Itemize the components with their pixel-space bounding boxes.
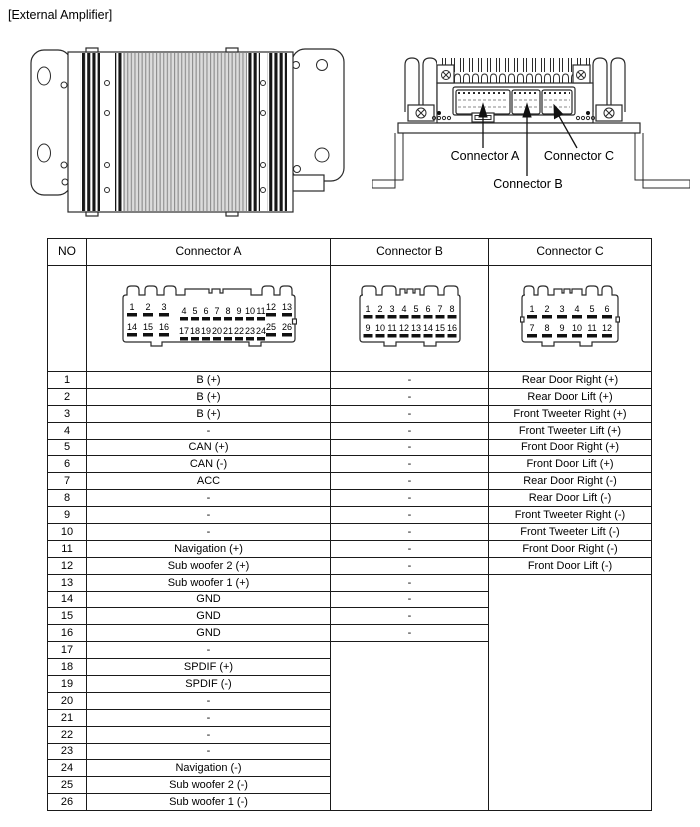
connector-b-pin-diagram: 12345678 910111213141516 xyxy=(331,266,489,372)
pin-number: 25 xyxy=(265,322,275,332)
pin-value-cell: Sub woofer 2 (+) xyxy=(87,557,331,574)
pin-value-cell: - xyxy=(331,625,489,642)
pin-value-cell: B (+) xyxy=(87,388,331,405)
fin-dark-band xyxy=(115,53,123,211)
pin-no-cell: 13 xyxy=(48,574,87,591)
pin-number: 7 xyxy=(437,304,442,314)
pin-no-cell: 1 xyxy=(48,372,87,389)
pin-no-cell: 21 xyxy=(48,709,87,726)
pin-number: 9 xyxy=(236,306,241,316)
pin-slot xyxy=(143,313,153,317)
pin-value-cell: - xyxy=(331,574,489,591)
pin-number: 6 xyxy=(203,306,208,316)
pin-value-cell: Front Tweeter Right (+) xyxy=(489,405,652,422)
pin-slot xyxy=(447,315,456,319)
pin-slot xyxy=(423,315,432,319)
pin-number: 16 xyxy=(446,323,456,333)
pin-slot xyxy=(127,333,137,337)
fin-dark-band xyxy=(80,53,100,211)
bottom-tab xyxy=(226,212,238,216)
pin-value-cell: - xyxy=(87,692,331,709)
bottom-tab xyxy=(86,212,98,216)
pin-value-cell: - xyxy=(331,456,489,473)
pin-number: 4 xyxy=(181,306,186,316)
pin-number: 8 xyxy=(544,323,549,333)
pin-slot xyxy=(387,315,396,319)
pin-slot xyxy=(447,334,456,338)
pin-slot xyxy=(235,317,243,321)
pin-number: 20 xyxy=(211,326,221,336)
pin-slot xyxy=(375,315,384,319)
pin-slot xyxy=(246,337,254,341)
pin-no-cell: 16 xyxy=(48,625,87,642)
pin-slot xyxy=(557,334,567,338)
pin-value-cell: GND xyxy=(87,591,331,608)
pin-number: 12 xyxy=(602,323,612,333)
pin-number: 14 xyxy=(422,323,432,333)
pin-value-cell: Rear Door Lift (-) xyxy=(489,490,652,507)
pin-value-cell: - xyxy=(331,490,489,507)
pin-no-cell: 19 xyxy=(48,676,87,693)
pin-slot xyxy=(213,317,221,321)
pin-slot xyxy=(257,317,265,321)
pin-value-cell: Front Door Right (+) xyxy=(489,439,652,456)
pin-slot xyxy=(266,333,276,337)
pin-value-cell: - xyxy=(331,372,489,389)
pin-value-cell: CAN (+) xyxy=(87,439,331,456)
pin-number: 26 xyxy=(281,322,291,332)
pin-slot xyxy=(587,315,597,319)
pin-value-cell: Front Tweeter Right (-) xyxy=(489,507,652,524)
pin-slot xyxy=(387,334,396,338)
pin-no-cell: 7 xyxy=(48,473,87,490)
merged-empty-cell xyxy=(489,574,652,810)
base-plate xyxy=(398,123,640,133)
pin-number: 23 xyxy=(244,326,254,336)
pin-value-cell: Rear Door Lift (+) xyxy=(489,388,652,405)
pin-no-cell: 14 xyxy=(48,591,87,608)
pin-value-cell: Navigation (-) xyxy=(87,760,331,777)
pin-number: 7 xyxy=(214,306,219,316)
pin-slot xyxy=(423,334,432,338)
pin-number: 9 xyxy=(559,323,564,333)
pin-number: 6 xyxy=(425,304,430,314)
right-bracket xyxy=(292,49,344,191)
pin-row: 10--Front Tweeter Lift (-) xyxy=(48,524,652,541)
pin-no-cell: 26 xyxy=(48,794,87,811)
pin-no-cell: 11 xyxy=(48,540,87,557)
pin-number: 6 xyxy=(604,304,609,314)
table-header-row: NO Connector A Connector B Connector C xyxy=(48,239,652,266)
pin-slot xyxy=(127,313,137,317)
pin-number: 2 xyxy=(544,304,549,314)
pin-number: 13 xyxy=(410,323,420,333)
pin-number: 5 xyxy=(192,306,197,316)
pin-number: 11 xyxy=(256,306,265,316)
pin-number: 3 xyxy=(161,302,166,312)
pin-slot xyxy=(572,334,582,338)
pin-value-cell: Navigation (+) xyxy=(87,540,331,557)
pin-no-cell: 3 xyxy=(48,405,87,422)
pin-slot xyxy=(363,334,372,338)
pin-row: 12Sub woofer 2 (+)-Front Door Lift (-) xyxy=(48,557,652,574)
connector-diagram-row: 123 4567891011 1213 141516 1718192021222… xyxy=(48,266,652,372)
pin-row: 9--Front Tweeter Right (-) xyxy=(48,507,652,524)
pin-no-cell: 25 xyxy=(48,777,87,794)
pinout-table-body: 1B (+)-Rear Door Right (+)2B (+)-Rear Do… xyxy=(48,372,652,811)
pin-slot xyxy=(235,337,243,341)
pin-value-cell: Front Door Lift (+) xyxy=(489,456,652,473)
pin-value-cell: - xyxy=(331,405,489,422)
pin-value-cell: Sub woofer 1 (-) xyxy=(87,794,331,811)
pin-value-cell: Sub woofer 1 (+) xyxy=(87,574,331,591)
pin-number: 2 xyxy=(145,302,150,312)
pin-no-cell: 6 xyxy=(48,456,87,473)
header-connector-c: Connector C xyxy=(489,239,652,266)
pin-number: 15 xyxy=(434,323,444,333)
pin-number: 4 xyxy=(401,304,406,314)
pin-number: 11 xyxy=(387,323,396,333)
pin-no-cell: 12 xyxy=(48,557,87,574)
pin-number: 4 xyxy=(574,304,579,314)
pin-number: 14 xyxy=(126,322,136,332)
fin-dark-band xyxy=(247,53,260,211)
diagram-no-cell xyxy=(48,266,87,372)
pin-number: 12 xyxy=(265,302,275,312)
amplifier-front-view-figure xyxy=(30,43,345,217)
pin-value-cell: Front Door Right (-) xyxy=(489,540,652,557)
pin-number: 13 xyxy=(281,302,291,312)
pin-slot xyxy=(587,334,597,338)
pin-number: 1 xyxy=(529,304,534,314)
pin-no-cell: 17 xyxy=(48,642,87,659)
pin-value-cell: GND xyxy=(87,608,331,625)
pin-number: 8 xyxy=(449,304,454,314)
pin-slot xyxy=(542,315,552,319)
pin-number: 12 xyxy=(398,323,408,333)
pin-slot xyxy=(191,317,199,321)
pin-value-cell: - xyxy=(87,642,331,659)
pin-number: 8 xyxy=(225,306,230,316)
amplifier-rear-view-figure: Connector A Connector C Connector B xyxy=(372,45,690,195)
fin-dark-band xyxy=(267,53,287,211)
pin-slot xyxy=(159,313,169,317)
pin-value-cell: - xyxy=(331,388,489,405)
pin-value-cell: ACC xyxy=(87,473,331,490)
pin-no-cell: 15 xyxy=(48,608,87,625)
page: [External Amplifier] xyxy=(0,0,700,827)
pin-value-cell: SPDIF (-) xyxy=(87,676,331,693)
pin-no-cell: 23 xyxy=(48,743,87,760)
pin-number: 10 xyxy=(572,323,582,333)
pin-slot xyxy=(213,337,221,341)
pin-value-cell: CAN (-) xyxy=(87,456,331,473)
pin-no-cell: 9 xyxy=(48,507,87,524)
pin-slot xyxy=(557,315,567,319)
pin-number: 17 xyxy=(178,326,188,336)
pin-value-cell: - xyxy=(87,490,331,507)
pin-no-cell: 24 xyxy=(48,760,87,777)
pin-row: 13Sub woofer 1 (+)- xyxy=(48,574,652,591)
pin-number: 1 xyxy=(129,302,134,312)
pin-value-cell: GND xyxy=(87,625,331,642)
pin-no-cell: 22 xyxy=(48,726,87,743)
pin-no-cell: 5 xyxy=(48,439,87,456)
pin-value-cell: - xyxy=(87,507,331,524)
pin-row: 7ACC-Rear Door Right (-) xyxy=(48,473,652,490)
pin-value-cell: Front Tweeter Lift (+) xyxy=(489,422,652,439)
pin-slot xyxy=(399,334,408,338)
pin-slot xyxy=(266,313,276,317)
pin-slot xyxy=(257,337,265,341)
connector-c-pin-diagram: 123456 789101112 xyxy=(489,266,652,372)
heatsink-fins xyxy=(123,53,247,211)
pin-number: 10 xyxy=(244,306,254,316)
pin-number: 18 xyxy=(189,326,199,336)
pin-number: 3 xyxy=(389,304,394,314)
pin-slot xyxy=(246,317,254,321)
pin-value-cell: B (+) xyxy=(87,372,331,389)
pin-number: 21 xyxy=(222,326,232,336)
pin-slot xyxy=(202,317,210,321)
header-no: NO xyxy=(48,239,87,266)
pin-no-cell: 2 xyxy=(48,388,87,405)
pin-row: 4--Front Tweeter Lift (+) xyxy=(48,422,652,439)
pin-number: 9 xyxy=(365,323,370,333)
top-tab xyxy=(86,48,98,52)
pin-value-cell: - xyxy=(331,473,489,490)
pin-slot xyxy=(411,315,420,319)
pin-value-cell: - xyxy=(331,524,489,541)
pin-number: 10 xyxy=(374,323,384,333)
pin-value-cell: - xyxy=(87,709,331,726)
pin-slot xyxy=(282,313,292,317)
page-title: [External Amplifier] xyxy=(8,8,112,22)
pin-number: 15 xyxy=(142,322,152,332)
pin-no-cell: 10 xyxy=(48,524,87,541)
pin-value-cell: - xyxy=(87,726,331,743)
top-tab xyxy=(226,48,238,52)
pin-slot xyxy=(602,315,612,319)
connector-a-callout-label: Connector A xyxy=(451,149,520,163)
pin-number: 5 xyxy=(589,304,594,314)
pin-value-cell: B (+) xyxy=(87,405,331,422)
pin-value-cell: - xyxy=(87,422,331,439)
pin-row: 8--Rear Door Lift (-) xyxy=(48,490,652,507)
pin-value-cell: Front Door Lift (-) xyxy=(489,557,652,574)
pin-no-cell: 4 xyxy=(48,422,87,439)
pin-number: 22 xyxy=(233,326,243,336)
pin-slot xyxy=(224,317,232,321)
pin-slot xyxy=(411,334,420,338)
pin-row: 5CAN (+)-Front Door Right (+) xyxy=(48,439,652,456)
pin-slot xyxy=(180,337,188,341)
pin-no-cell: 20 xyxy=(48,692,87,709)
pin-slot xyxy=(143,333,153,337)
pin-slot xyxy=(180,317,188,321)
pin-slot xyxy=(159,333,169,337)
pin-value-cell: - xyxy=(87,524,331,541)
pin-slot xyxy=(282,333,292,337)
pin-number: 19 xyxy=(200,326,210,336)
connector-c-callout-label: Connector C xyxy=(544,149,614,163)
header-connector-b: Connector B xyxy=(331,239,489,266)
pin-value-cell: Rear Door Right (+) xyxy=(489,372,652,389)
pin-value-cell: - xyxy=(331,422,489,439)
left-bracket xyxy=(31,50,71,195)
pinout-table: NO Connector A Connector B Connector C 1… xyxy=(47,238,652,811)
pin-slot xyxy=(602,334,612,338)
amplifier-body xyxy=(68,48,293,216)
pin-value-cell: - xyxy=(331,557,489,574)
pin-row: 6CAN (-)-Front Door Lift (+) xyxy=(48,456,652,473)
pin-number: 11 xyxy=(587,323,596,333)
pin-value-cell: - xyxy=(331,507,489,524)
pin-number: 3 xyxy=(559,304,564,314)
pin-slot xyxy=(399,315,408,319)
pin-slot xyxy=(375,334,384,338)
pin-slot xyxy=(542,334,552,338)
pin-slot xyxy=(572,315,582,319)
pin-number: 7 xyxy=(529,323,534,333)
pin-value-cell: Front Tweeter Lift (-) xyxy=(489,524,652,541)
pin-slot xyxy=(363,315,372,319)
pin-value-cell: - xyxy=(331,439,489,456)
connector-a-pin-diagram: 123 4567891011 1213 141516 1718192021222… xyxy=(87,266,331,372)
pin-value-cell: - xyxy=(87,743,331,760)
merged-empty-cell xyxy=(331,642,489,811)
pin-row: 3B (+)-Front Tweeter Right (+) xyxy=(48,405,652,422)
pin-value-cell: - xyxy=(331,608,489,625)
pin-value-cell: - xyxy=(331,540,489,557)
pin-slot xyxy=(435,315,444,319)
pin-slot xyxy=(435,334,444,338)
pin-number: 1 xyxy=(365,304,370,314)
pin-slot xyxy=(191,337,199,341)
pin-slot xyxy=(202,337,210,341)
pin-no-cell: 8 xyxy=(48,490,87,507)
connector-b-callout-label: Connector B xyxy=(493,177,562,191)
pin-slot xyxy=(224,337,232,341)
pin-row: 11Navigation (+)-Front Door Right (-) xyxy=(48,540,652,557)
heatsink-comb xyxy=(437,58,590,83)
header-connector-a: Connector A xyxy=(87,239,331,266)
pin-row: 1B (+)-Rear Door Right (+) xyxy=(48,372,652,389)
pin-row: 2B (+)-Rear Door Lift (+) xyxy=(48,388,652,405)
pin-number: 16 xyxy=(158,322,168,332)
pin-value-cell: Rear Door Right (-) xyxy=(489,473,652,490)
pin-number: 5 xyxy=(413,304,418,314)
pin-value-cell: Sub woofer 2 (-) xyxy=(87,777,331,794)
pin-no-cell: 18 xyxy=(48,659,87,676)
pin-value-cell: SPDIF (+) xyxy=(87,659,331,676)
pin-slot xyxy=(527,334,537,338)
pin-number: 24 xyxy=(255,326,265,336)
pin-value-cell: - xyxy=(331,591,489,608)
pin-slot xyxy=(527,315,537,319)
pin-number: 2 xyxy=(377,304,382,314)
